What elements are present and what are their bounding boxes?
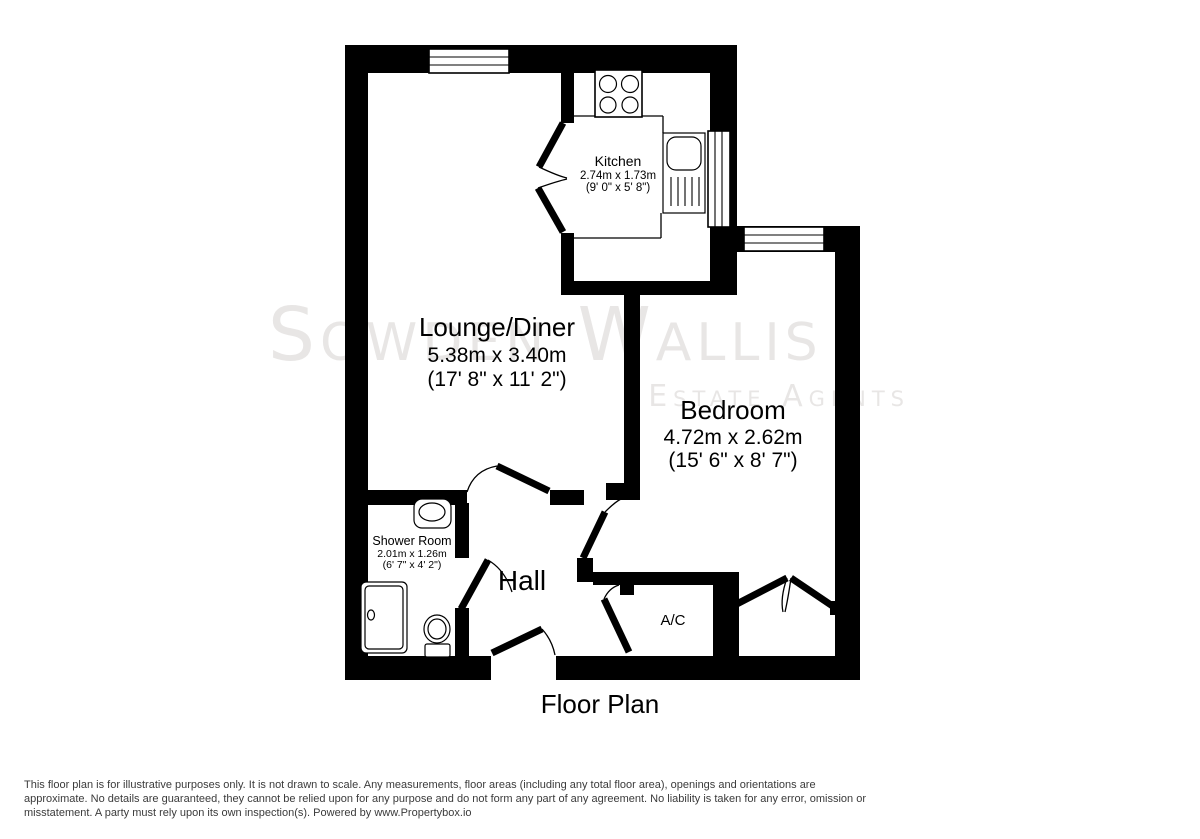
kitchen-window-icon <box>708 131 730 227</box>
divider-door-stub <box>606 483 624 500</box>
toilet-icon <box>424 615 450 657</box>
lounge-label: Lounge/Diner 5.38m x 3.40m (17' 8" x 11'… <box>419 312 575 391</box>
disclaimer: This floor plan is for illustrative purp… <box>24 779 866 820</box>
disclaimer-line1: This floor plan is for illustrative purp… <box>24 779 866 793</box>
bedroom-name: Bedroom <box>680 395 786 425</box>
plan-title: Floor Plan <box>541 689 660 719</box>
bedroom-door-icon <box>583 499 621 558</box>
shower-name: Shower Room <box>372 534 451 548</box>
hall-top-wall <box>550 490 584 505</box>
entrance-door-icon <box>492 629 555 655</box>
kitchen-bottom-wall <box>561 281 737 295</box>
kitchen-label: Kitchen 2.74m x 1.73m (9' 0" x 5' 8") <box>580 153 656 194</box>
lounge-bedroom-divider <box>624 293 640 500</box>
hob-icon <box>595 70 642 117</box>
bottom-wall-right <box>556 656 860 680</box>
shower-right-wall-bottom <box>455 608 469 656</box>
bedroom-label: Bedroom 4.72m x 2.62m (15' 6" x 8' 7") <box>664 395 803 472</box>
ac-door-icon <box>604 585 629 652</box>
lounge-metric: 5.38m x 3.40m <box>428 344 567 367</box>
bedroom-door-stub <box>577 558 593 582</box>
lounge-imperial: (17' 8" x 11' 2") <box>427 368 566 391</box>
bedroom-metric: 4.72m x 2.62m <box>664 426 803 449</box>
hall-label: Hall <box>498 565 546 596</box>
kitchen-door-stub-bottom <box>561 233 574 281</box>
basin-icon <box>414 499 451 528</box>
disclaimer-line2: approximate. No details are guaranteed, … <box>24 793 866 807</box>
shower-room-label: Shower Room 2.01m x 1.26m (6' 7" x 4' 2"… <box>372 534 451 571</box>
disclaimer-line3: misstatement. A party must rely upon its… <box>24 807 866 821</box>
bottom-wall-left <box>345 656 491 680</box>
lounge-door-icon <box>467 466 549 492</box>
ac-door-stub <box>620 585 634 595</box>
lounge-window-icon <box>429 49 509 73</box>
bedroom-double-door-icon <box>731 578 834 612</box>
ac-label: A/C <box>660 612 685 629</box>
top-wall <box>345 45 737 73</box>
floorplan-drawing: Kitchen 2.74m x 1.73m (9' 0" x 5' 8") Lo… <box>0 0 1200 839</box>
shower-right-wall-top <box>455 503 469 558</box>
shower-tray-icon <box>361 582 407 653</box>
kitchen-imperial: (9' 0" x 5' 8") <box>586 182 650 194</box>
bedroom-window-icon <box>744 227 824 251</box>
bedroom-imperial: (15' 6" x 8' 7") <box>668 449 797 472</box>
shower-imperial: (6' 7" x 4' 2") <box>383 559 442 571</box>
floorplan-page: Sowden Wallis Estate Agents <box>0 0 1200 839</box>
walls <box>345 45 860 680</box>
closet-stub-left <box>718 601 732 615</box>
hall-ac-wall <box>593 572 723 585</box>
kitchen-name: Kitchen <box>595 153 642 169</box>
kitchen-folding-door-icon <box>538 123 567 232</box>
room-labels: Kitchen 2.74m x 1.73m (9' 0" x 5' 8") Lo… <box>372 153 802 629</box>
kitchen-metric: 2.74m x 1.73m <box>580 170 656 182</box>
sink-icon <box>663 133 705 213</box>
lounge-name: Lounge/Diner <box>419 312 575 342</box>
